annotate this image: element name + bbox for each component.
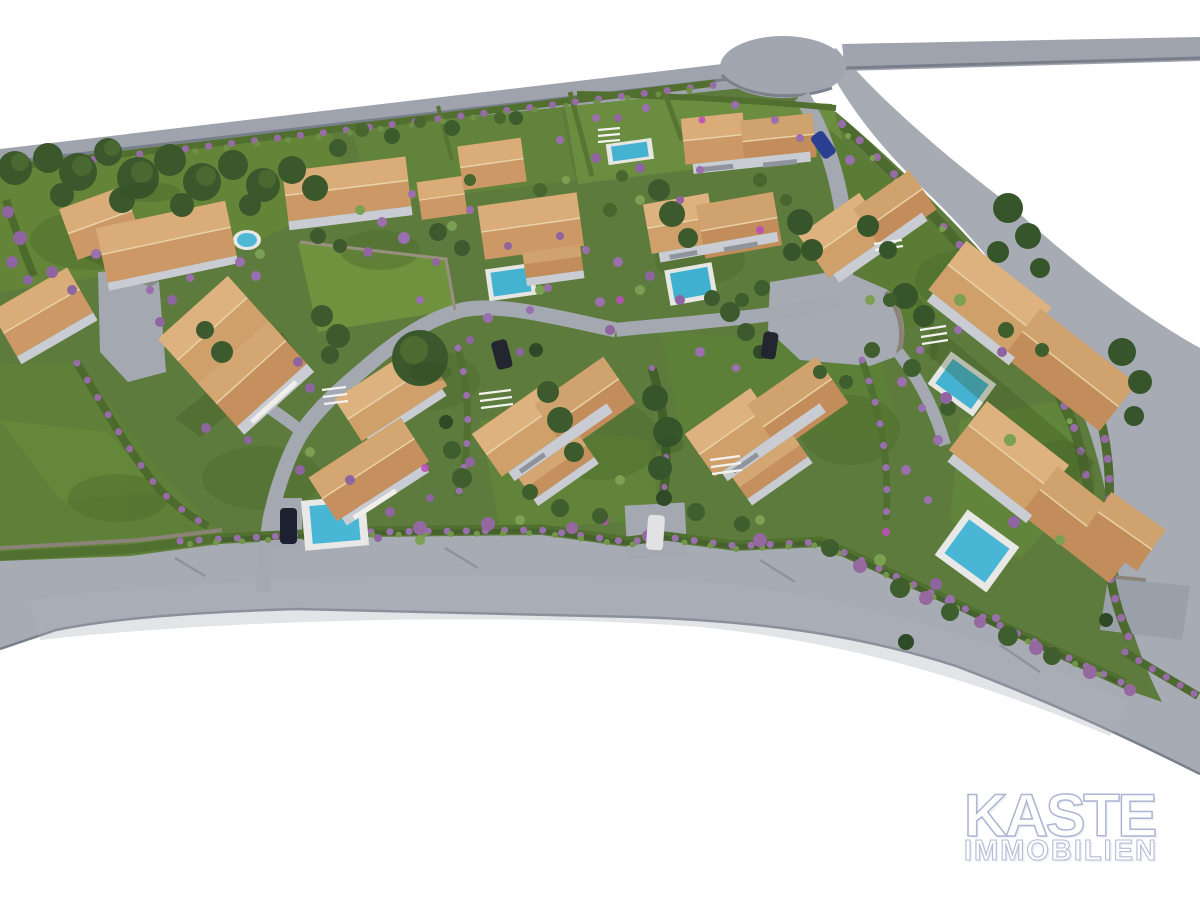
svg-text:IMMOBILIEN: IMMOBILIEN [964, 835, 1158, 867]
